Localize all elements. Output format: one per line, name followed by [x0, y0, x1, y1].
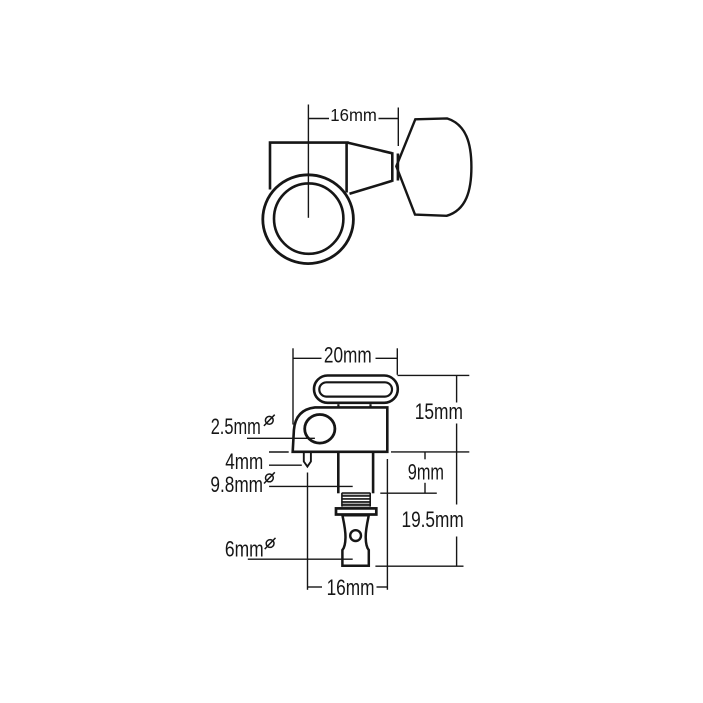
svg-text:16mm: 16mm: [330, 105, 377, 125]
svg-text:2.5mm: 2.5mm: [211, 414, 261, 439]
svg-text:15mm: 15mm: [415, 399, 463, 424]
svg-text:20mm: 20mm: [324, 343, 372, 368]
svg-text:16mm: 16mm: [327, 575, 375, 600]
svg-text:19.5mm: 19.5mm: [402, 507, 464, 532]
svg-text:6mm: 6mm: [225, 536, 264, 561]
svg-text:9mm: 9mm: [408, 459, 444, 484]
svg-text:9.8mm: 9.8mm: [210, 472, 263, 497]
svg-text:4mm: 4mm: [225, 449, 263, 474]
